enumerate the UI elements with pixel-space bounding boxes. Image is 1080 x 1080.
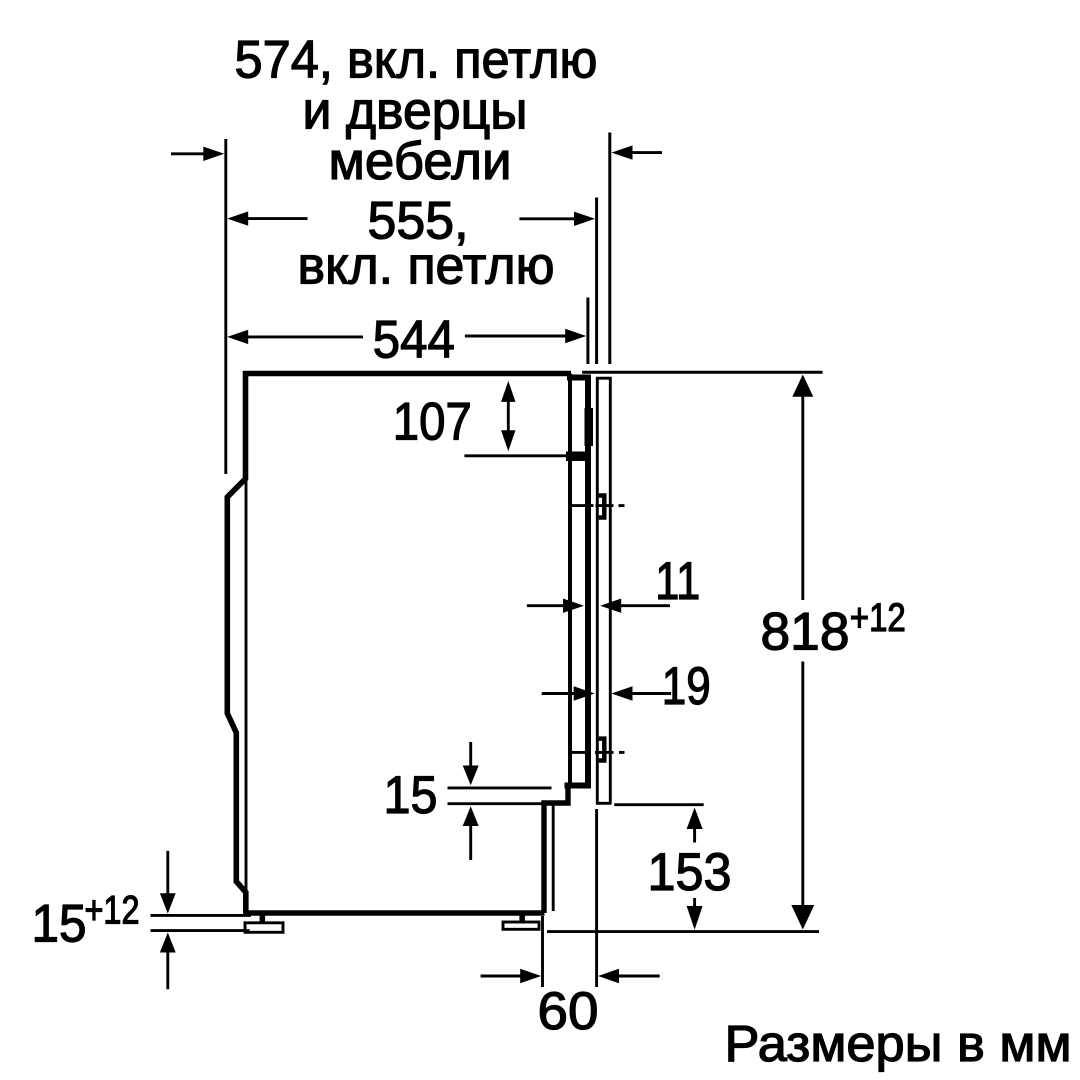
svg-text:544: 544 — [373, 311, 455, 370]
svg-text:60: 60 — [538, 982, 599, 1041]
svg-text:Размеры в мм: Размеры в мм — [725, 1015, 1072, 1072]
svg-text:19: 19 — [662, 657, 711, 716]
svg-text:мебели: мебели — [329, 132, 512, 191]
svg-text:153: 153 — [648, 843, 732, 902]
svg-text:15: 15 — [384, 766, 438, 825]
svg-text:+12: +12 — [850, 596, 906, 640]
svg-text:вкл. петлю: вкл. петлю — [298, 237, 555, 296]
svg-text:11: 11 — [655, 552, 700, 611]
svg-text:+12: +12 — [85, 889, 140, 933]
svg-text:107: 107 — [393, 392, 472, 451]
svg-text:15: 15 — [32, 895, 87, 954]
svg-text:818: 818 — [761, 603, 850, 662]
